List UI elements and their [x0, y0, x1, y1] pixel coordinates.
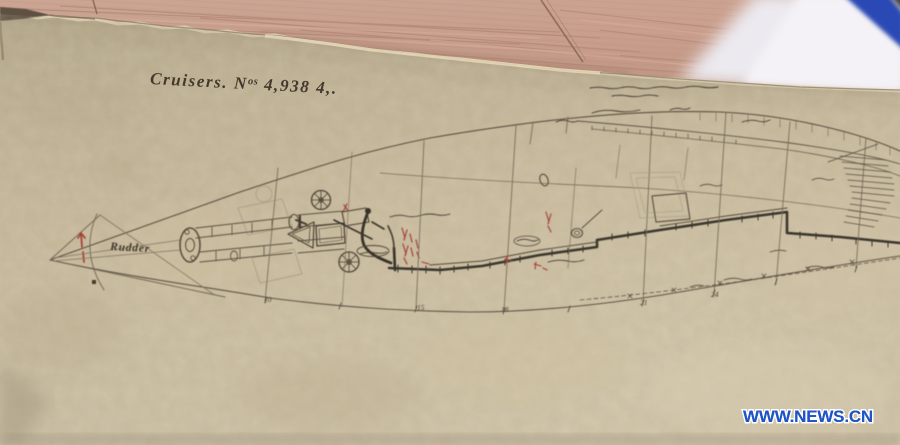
svg-text:21: 21	[640, 298, 648, 307]
svg-text:24: 24	[711, 290, 719, 299]
svg-text:18: 18	[501, 305, 509, 314]
svg-text:WWW.NEWS.CN: WWW.NEWS.CN	[743, 407, 873, 426]
svg-text:Rudder: Rudder	[109, 241, 151, 255]
svg-text:10: 10	[264, 295, 272, 304]
svg-text:15: 15	[417, 303, 425, 312]
